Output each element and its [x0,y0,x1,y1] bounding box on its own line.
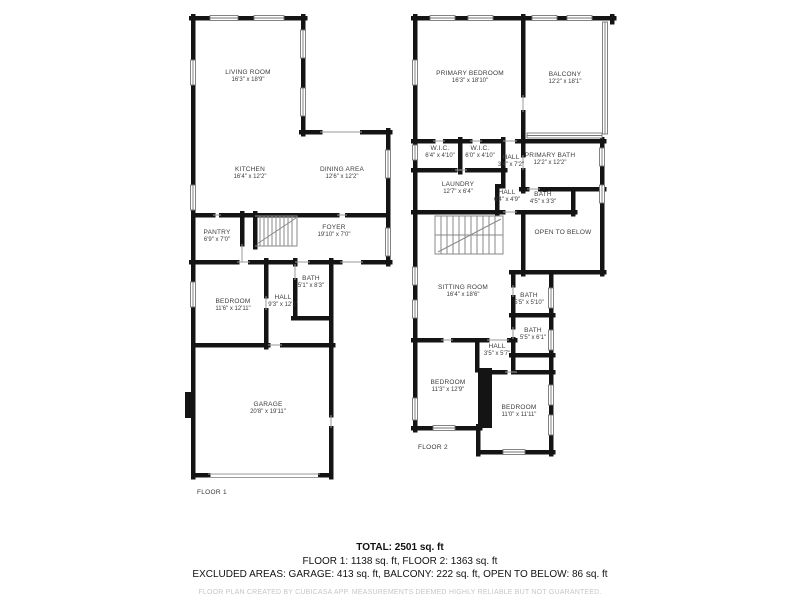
garage-pillar [185,392,193,418]
room-label-primary-bath: PRIMARY BATH 12'2" x 12'2" [525,152,575,168]
room-label-bath-f1: BATH 5'1" x 8'3" [298,275,324,291]
room-label-garage: GARAGE 20'8" x 19'11" [250,401,286,417]
excluded-areas: EXCLUDED AREAS: GARAGE: 413 sq. ft, BALC… [0,568,800,582]
room-label-bedroom-2: BEDROOM 11'0" x 11'11" [502,404,537,420]
room-label-sitting-room: SITTING ROOM 16'4" x 18'6" [438,284,488,300]
room-label-dining-area: DINING AREA 12'6" x 12'2" [320,166,364,182]
floor1-walls [185,16,390,478]
room-label-hall-mid: HALL 6'4" x 4'9" [494,189,520,205]
room-label-wic-2: W.I.C. 6'0" x 4'10" [465,145,495,161]
stairs-floor1 [255,216,297,246]
area-summary: TOTAL: 2501 sq. ft FLOOR 1: 1138 sq. ft,… [0,541,800,596]
room-label-bath-3: BATH 5'5" x 6'1" [520,327,546,343]
disclaimer: FLOOR PLAN CREATED BY CUBICASA APP. MEAS… [0,589,800,596]
room-label-bath-small: BATH 4'5" x 3'3" [530,191,556,207]
total-area: TOTAL: 2501 sq. ft [0,541,800,555]
floor2-caption: FLOOR 2 [418,444,448,451]
room-label-balcony: BALCONY 12'2" x 18'1" [549,71,582,87]
room-label-foyer: FOYER 19'10" x 7'0" [318,224,351,240]
room-label-kitchen: KITCHEN 16'4" x 12'2" [234,166,267,182]
floor1-caption: FLOOR 1 [197,489,227,496]
floorplan-page: LIVING ROOM 16'3" x 18'9" KITCHEN 16'4" … [0,0,800,600]
room-label-laundry: LAUNDRY 12'7" x 6'4" [442,181,474,197]
room-label-hall-lower: HALL 3'5" x 5'7" [484,343,510,359]
room-label-hall-f1: HALL 9'3" x 12'1" [268,294,298,310]
room-label-primary-bedroom: PRIMARY BEDROOM 16'3" x 18'10" [436,70,504,86]
chase-wall [478,368,492,428]
room-label-pantry: PANTRY 6'9" x 7'0" [204,229,231,245]
room-label-living-room: LIVING ROOM 16'3" x 18'9" [225,69,271,85]
room-label-bedroom-1: BEDROOM 11'3" x 12'9" [431,379,466,395]
room-label-wic-1: W.I.C. 6'4" x 4'10" [425,145,455,161]
room-label-open-to-below: OPEN TO BELOW [535,229,592,237]
room-label-bath-2: BATH 5'5" x 5'10" [514,292,544,308]
floorplan-drawing [0,0,800,600]
room-label-bedroom-f1: BEDROOM 11'6" x 12'11" [215,298,250,314]
stairs-floor2 [435,216,503,254]
room-label-hall-upper: HALL 3'4" x 7'2" [498,154,524,170]
floor-areas: FLOOR 1: 1138 sq. ft, FLOOR 2: 1363 sq. … [0,555,800,569]
